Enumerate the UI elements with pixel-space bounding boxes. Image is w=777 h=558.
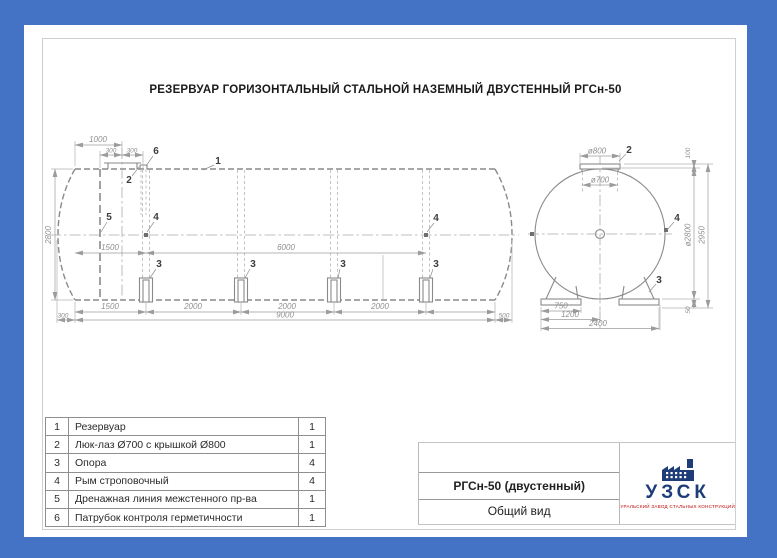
part-number: 6	[46, 508, 69, 526]
page-title: РЕЗЕРВУАР ГОРИЗОНТАЛЬНЫЙ СТАЛЬНОЙ НАЗЕМН…	[24, 84, 747, 96]
part-qty: 1	[299, 436, 326, 454]
part-name: Патрубок контроля герметичности	[69, 508, 299, 526]
part-name: Люк-лаз Ø700 с крышкой Ø800	[69, 436, 299, 454]
title-block-empty-row	[419, 443, 619, 472]
logo-abbr: УЗСК	[645, 483, 710, 502]
part-name: Резервуар	[69, 418, 299, 436]
title-block-cells: РГСн-50 (двустенный) Общий вид	[418, 443, 620, 524]
drawing-sheet: РЕЗЕРВУАР ГОРИЗОНТАЛЬНЫЙ СТАЛЬНОЙ НАЗЕМН…	[24, 25, 747, 537]
view-name: Общий вид	[419, 499, 619, 523]
screenshot-canvas: РЕЗЕРВУАР ГОРИЗОНТАЛЬНЫЙ СТАЛЬНОЙ НАЗЕМН…	[0, 0, 777, 558]
part-number: 4	[46, 472, 69, 490]
company-logo: УЗСК УРАЛЬСКИЙ ЗАВОД СТАЛЬНЫХ КОНСТРУКЦИ…	[620, 443, 735, 524]
logo-caption: УРАЛЬСКИЙ ЗАВОД СТАЛЬНЫХ КОНСТРУКЦИЙ	[620, 504, 735, 509]
part-qty: 4	[299, 472, 326, 490]
table-row: 2 Люк-лаз Ø700 с крышкой Ø800 1	[46, 436, 326, 454]
part-qty: 1	[299, 490, 326, 508]
part-number: 2	[46, 436, 69, 454]
factory-icon	[658, 458, 698, 482]
part-name: Дренажная линия межстенного пр-ва	[69, 490, 299, 508]
table-row: 5 Дренажная линия межстенного пр-ва 1	[46, 490, 326, 508]
table-row: 4 Рым строповочный 4	[46, 472, 326, 490]
title-block: РГСн-50 (двустенный) Общий вид	[418, 442, 735, 525]
part-number: 3	[46, 454, 69, 472]
part-name: Рым строповочный	[69, 472, 299, 490]
table-row: 6 Патрубок контроля герметичности 1	[46, 508, 326, 526]
part-name: Опора	[69, 454, 299, 472]
part-number: 1	[46, 418, 69, 436]
part-qty: 4	[299, 454, 326, 472]
table-row: 1 Резервуар 1	[46, 418, 326, 436]
part-qty: 1	[299, 508, 326, 526]
parts-table: 1 Резервуар 1 2 Люк-лаз Ø700 с крышкой Ø…	[45, 417, 326, 527]
part-qty: 1	[299, 418, 326, 436]
table-row: 3 Опора 4	[46, 454, 326, 472]
part-number: 5	[46, 490, 69, 508]
model-designation: РГСн-50 (двустенный)	[419, 472, 619, 499]
